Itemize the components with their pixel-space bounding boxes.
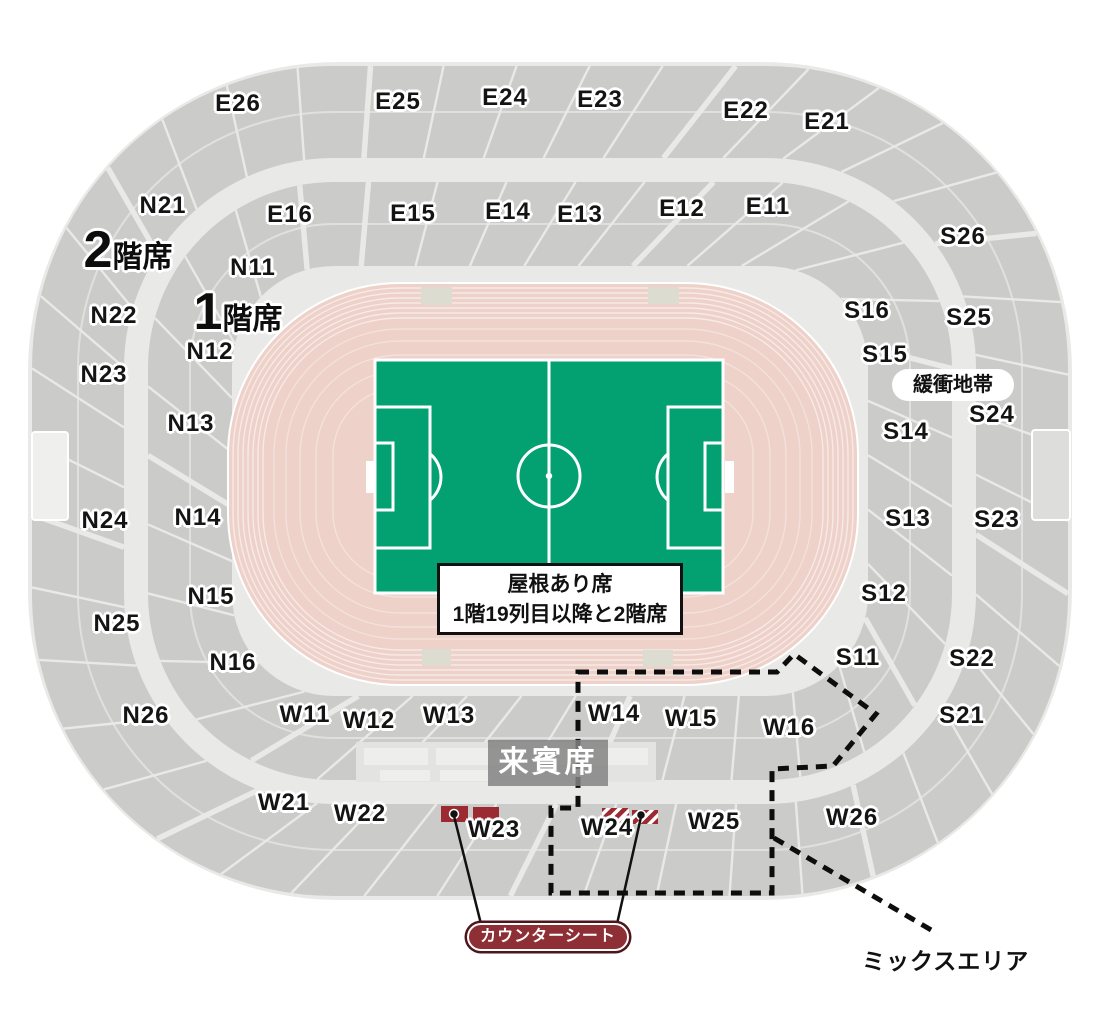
- left-goal: [366, 461, 375, 493]
- section-label-s12: S12: [861, 580, 907, 608]
- section-label-s24: S24: [969, 401, 1015, 429]
- buffer-zone-badge: 緩衝地帯: [892, 369, 1014, 401]
- section-label-s22: S22: [949, 645, 995, 673]
- second-floor-number: 2: [84, 221, 113, 279]
- section-label-n14: N14: [174, 504, 221, 532]
- section-label-w14: W14: [588, 700, 640, 728]
- section-label-e12: E12: [659, 195, 705, 223]
- second-floor-label: 2階席: [84, 220, 173, 280]
- section-label-e14: E14: [485, 198, 531, 226]
- section-label-n21: N21: [139, 192, 186, 220]
- center-spot: [546, 473, 552, 479]
- section-label-w24: W24: [581, 814, 633, 842]
- section-label-e15: E15: [390, 200, 436, 228]
- section-label-n22: N22: [90, 302, 137, 330]
- section-label-w11: W11: [279, 701, 330, 729]
- section-label-n13: N13: [167, 410, 214, 438]
- section-label-w12: W12: [343, 707, 395, 735]
- section-label-w13: W13: [423, 702, 475, 730]
- section-label-w22: W22: [334, 800, 386, 828]
- section-label-s21: S21: [939, 702, 985, 730]
- section-label-n16: N16: [209, 649, 256, 677]
- roof-note-line2: 1階19列目以降と2階席: [440, 600, 680, 630]
- section-label-s26: S26: [940, 223, 986, 251]
- section-label-s11: S11: [836, 644, 880, 672]
- section-label-e23: E23: [577, 86, 623, 114]
- section-label-s23: S23: [974, 506, 1020, 534]
- section-label-w21: W21: [258, 789, 310, 817]
- section-label-w23: W23: [468, 816, 520, 844]
- section-label-e24: E24: [482, 84, 528, 112]
- stadium-map-svg: [0, 0, 1100, 1034]
- second-floor-suffix: 階席: [112, 241, 172, 274]
- first-floor-suffix: 階席: [222, 303, 282, 336]
- section-label-n11: N11: [230, 254, 276, 282]
- section-label-s14: S14: [883, 418, 929, 446]
- section-label-e22: E22: [723, 97, 769, 125]
- section-label-e26: E26: [215, 90, 261, 118]
- section-label-w15: W15: [665, 705, 717, 733]
- roof-note-box: 屋根あり席 1階19列目以降と2階席: [437, 563, 683, 635]
- section-label-e25: E25: [375, 88, 421, 116]
- section-label-n24: N24: [81, 507, 128, 535]
- section-label-e11: E11: [746, 193, 790, 221]
- section-label-n12: N12: [186, 338, 233, 366]
- section-label-n26: N26: [122, 702, 169, 730]
- right-goal: [725, 461, 734, 493]
- mix-area-label: ミックスエリア: [862, 942, 1029, 976]
- first-floor-label: 1階席: [194, 282, 283, 342]
- section-label-n15: N15: [187, 583, 234, 611]
- section-label-e13: E13: [557, 201, 603, 229]
- section-label-s15: S15: [862, 341, 908, 369]
- section-label-s16: S16: [844, 297, 890, 325]
- section-label-s25: S25: [946, 304, 992, 332]
- section-label-w16: W16: [763, 714, 815, 742]
- section-label-s13: S13: [885, 505, 931, 533]
- section-label-w26: W26: [826, 804, 878, 832]
- section-label-e16: E16: [267, 201, 313, 229]
- section-label-e21: E21: [804, 108, 850, 136]
- soccer-field: [366, 360, 734, 593]
- section-label-n23: N23: [80, 361, 127, 389]
- first-floor-number: 1: [194, 283, 223, 341]
- roof-note-line1: 屋根あり席: [440, 570, 680, 600]
- east-gate-structure: [1032, 430, 1070, 520]
- section-label-n25: N25: [93, 610, 140, 638]
- section-label-w25: W25: [688, 808, 740, 836]
- vip-seats-badge: 来賓席: [488, 740, 608, 786]
- counter-seat-badge: カウンターシート: [467, 923, 629, 951]
- stadium-seat-map: E26E25E24E23E22E21E16E15E14E13E12E11N21N…: [0, 0, 1100, 1034]
- west-gate-structure: [32, 432, 68, 520]
